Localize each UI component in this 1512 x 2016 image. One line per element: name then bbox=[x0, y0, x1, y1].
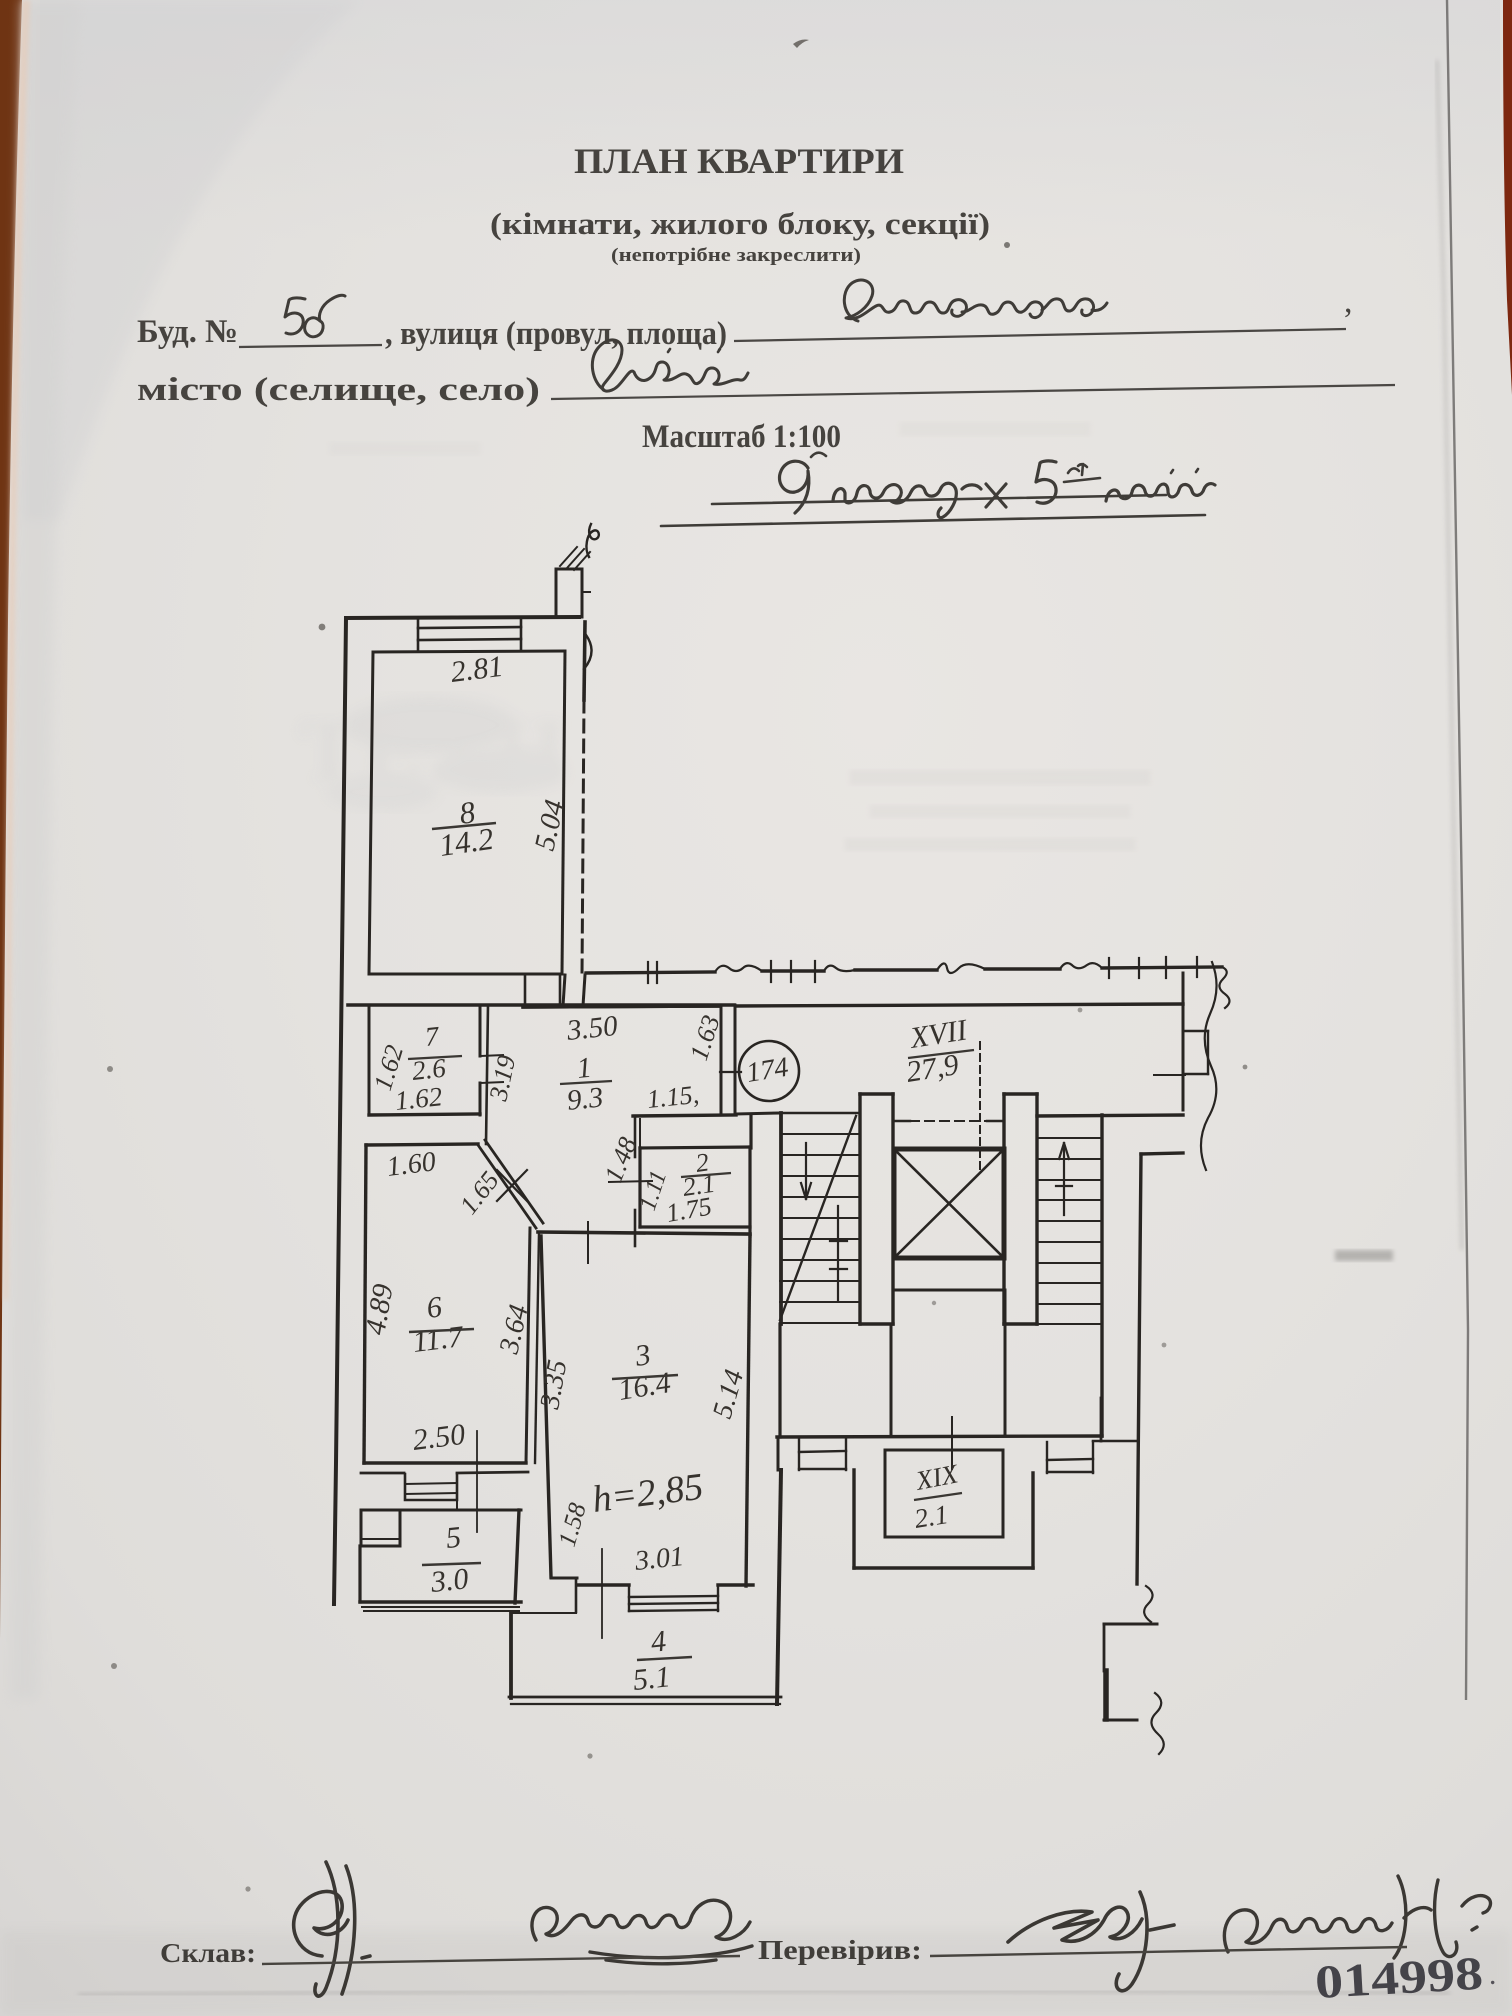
svg-text:ПЛАН КВАРТИРИ: ПЛАН КВАРТИРИ bbox=[574, 141, 904, 181]
svg-text:1.15,: 1.15, bbox=[646, 1080, 701, 1114]
svg-text:5.1: 5.1 bbox=[631, 1660, 672, 1697]
svg-text:2.81: 2.81 bbox=[449, 650, 505, 689]
svg-text:Масштаб 1:100: Масштаб 1:100 bbox=[642, 419, 841, 455]
svg-text:2.1: 2.1 bbox=[912, 1499, 950, 1534]
svg-text:Перевірив:: Перевірив: bbox=[758, 1935, 922, 1965]
svg-text:11.7: 11.7 bbox=[411, 1320, 467, 1359]
svg-text:Склав:: Склав: bbox=[160, 1938, 256, 1968]
svg-text:9.3: 9.3 bbox=[565, 1081, 604, 1117]
svg-text:2.50: 2.50 bbox=[411, 1418, 467, 1457]
svg-text:174: 174 bbox=[744, 1052, 790, 1089]
svg-text:місто (селище, село): місто (селище, село) bbox=[137, 372, 540, 408]
svg-text:3.50: 3.50 bbox=[564, 1010, 619, 1047]
svg-text:(кімнати, жилого блоку, секції: (кімнати, жилого блоку, секції) bbox=[490, 206, 990, 241]
svg-text:3.0: 3.0 bbox=[428, 1562, 470, 1599]
svg-text:014998: 014998 bbox=[1314, 1948, 1485, 2009]
svg-text:,: , bbox=[1344, 283, 1353, 320]
svg-text:1.60: 1.60 bbox=[385, 1146, 437, 1183]
svg-text:Буд. №: Буд. № bbox=[137, 314, 238, 350]
svg-text:1.62: 1.62 bbox=[393, 1081, 443, 1116]
svg-text:, вулиця (провул, площа): , вулиця (провул, площа) bbox=[385, 316, 727, 352]
svg-text:3.01: 3.01 bbox=[632, 1541, 685, 1577]
svg-text:(непотрібне закреслити): (непотрібне закреслити) bbox=[611, 246, 861, 266]
